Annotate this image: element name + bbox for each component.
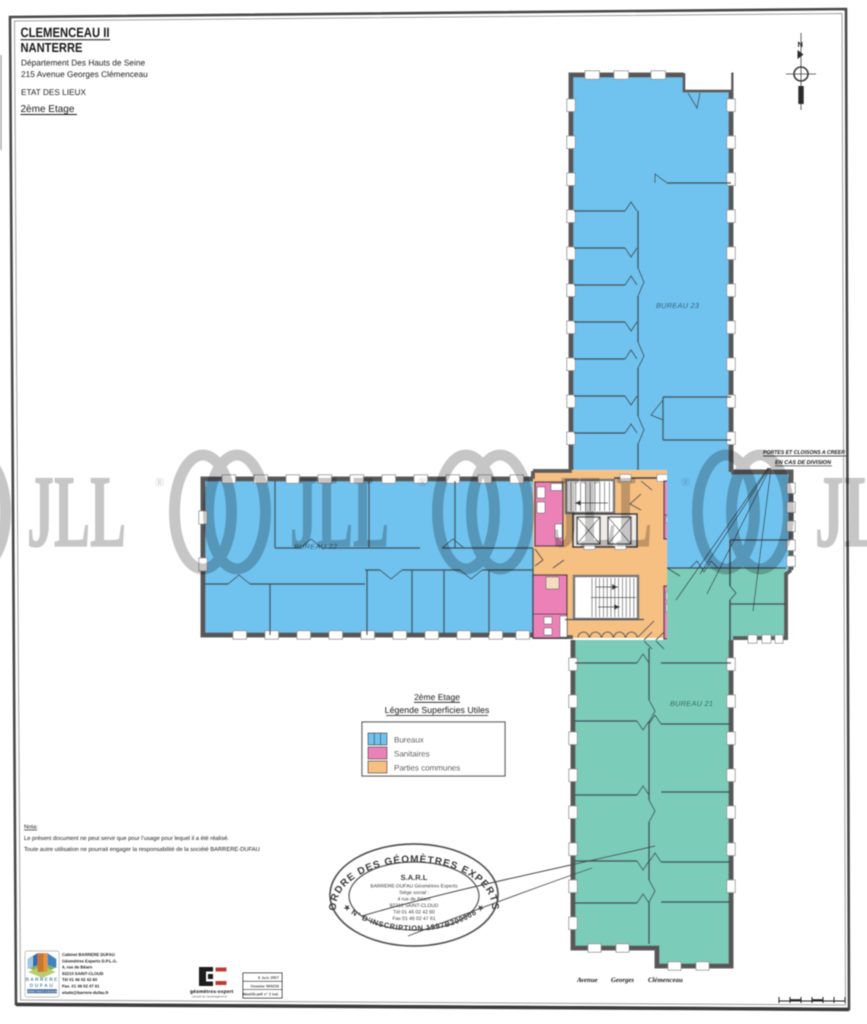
svg-text:2ème Etage: 2ème Etage xyxy=(21,104,75,115)
svg-text:BUREAU 21: BUREAU 21 xyxy=(670,699,713,708)
svg-text:NANTERRE: NANTERRE xyxy=(21,40,83,55)
svg-text:6 Juin 2007: 6 Juin 2007 xyxy=(258,975,279,980)
svg-text:Le présent document ne peut se: Le présent document ne peut servir que p… xyxy=(24,835,229,842)
svg-text:Avenue: Avenue xyxy=(576,977,598,984)
svg-text:4, rue de Béarn: 4, rue de Béarn xyxy=(62,965,93,970)
svg-text:CLEMENCEAU II: CLEMENCEAU II xyxy=(21,25,110,40)
svg-text:GÉOMÈTRES EXPERTS: GÉOMÈTRES EXPERTS xyxy=(22,990,61,994)
svg-text:Fax 01 46 02 47 61: Fax 01 46 02 47 61 xyxy=(392,916,435,922)
svg-text:Tél 01 46 02 42 60: Tél 01 46 02 42 60 xyxy=(393,910,435,916)
svg-text:BARRERE-DUFAU Géomètres Expert: BARRERE-DUFAU Géomètres Experts xyxy=(370,884,458,890)
svg-text:Bureaux: Bureaux xyxy=(394,736,424,745)
svg-text:2ème Etage: 2ème Etage xyxy=(414,692,460,702)
svg-text:Tél 01 46 02 42 60: Tél 01 46 02 42 60 xyxy=(62,977,98,982)
svg-text:Dossier 060235: Dossier 060235 xyxy=(251,983,280,988)
svg-text:215 Avenue Georges Clémenceau: 215 Avenue Georges Clémenceau xyxy=(21,69,148,79)
svg-text:®: ® xyxy=(681,475,690,489)
svg-text:Nota:: Nota: xyxy=(24,825,38,831)
svg-text:DUFAU: DUFAU xyxy=(30,983,55,989)
svg-text:Georges: Georges xyxy=(611,977,634,984)
svg-text:ETAT DES LIEUX: ETAT DES LIEUX xyxy=(21,87,86,97)
svg-text:®: ® xyxy=(155,475,164,489)
svg-text:Siège social :: Siège social : xyxy=(399,890,429,896)
svg-text:JLL: JLL xyxy=(27,455,126,569)
svg-text:Fax. 01 46 02 47 61: Fax. 01 46 02 47 61 xyxy=(62,984,100,989)
svg-text:JLL: JLL xyxy=(815,455,867,569)
svg-text:Géomètres Experts D.P.L.G.: Géomètres Experts D.P.L.G. xyxy=(62,958,117,963)
svg-text:Département Des Hauts de Seine: Département Des Hauts de Seine xyxy=(21,58,145,68)
svg-text:Parties communes: Parties communes xyxy=(394,764,460,773)
svg-text:JLL: JLL xyxy=(553,455,652,569)
svg-text:N: N xyxy=(798,40,803,49)
svg-text:Toute autre utilisation ne pou: Toute autre utilisation ne pourrait enga… xyxy=(24,846,260,853)
svg-text:92210 SAINT-CLOUD: 92210 SAINT-CLOUD xyxy=(62,971,103,976)
svg-text:etude@barrere-dufau.fr: etude@barrere-dufau.fr xyxy=(62,990,109,995)
svg-text:JLL: JLL xyxy=(290,455,389,569)
svg-text:BUREAU 23: BUREAU 23 xyxy=(656,301,699,310)
svg-text:®: ® xyxy=(418,475,427,489)
svg-text:Clémenceau: Clémenceau xyxy=(648,977,683,984)
svg-text:S.A.R.L: S.A.R.L xyxy=(401,873,428,882)
svg-text:Modificatif n° 2 Ind.: Modificatif n° 2 Ind. xyxy=(243,992,279,997)
svg-text:Sanitaires: Sanitaires xyxy=(394,750,430,759)
svg-text:conseil de l’aménagement: conseil de l’aménagement xyxy=(192,995,227,999)
svg-text:Légende Superficies Utiles: Légende Superficies Utiles xyxy=(385,705,490,715)
svg-text:Cabinet BARRERE DUFAU: Cabinet BARRERE DUFAU xyxy=(62,952,115,957)
